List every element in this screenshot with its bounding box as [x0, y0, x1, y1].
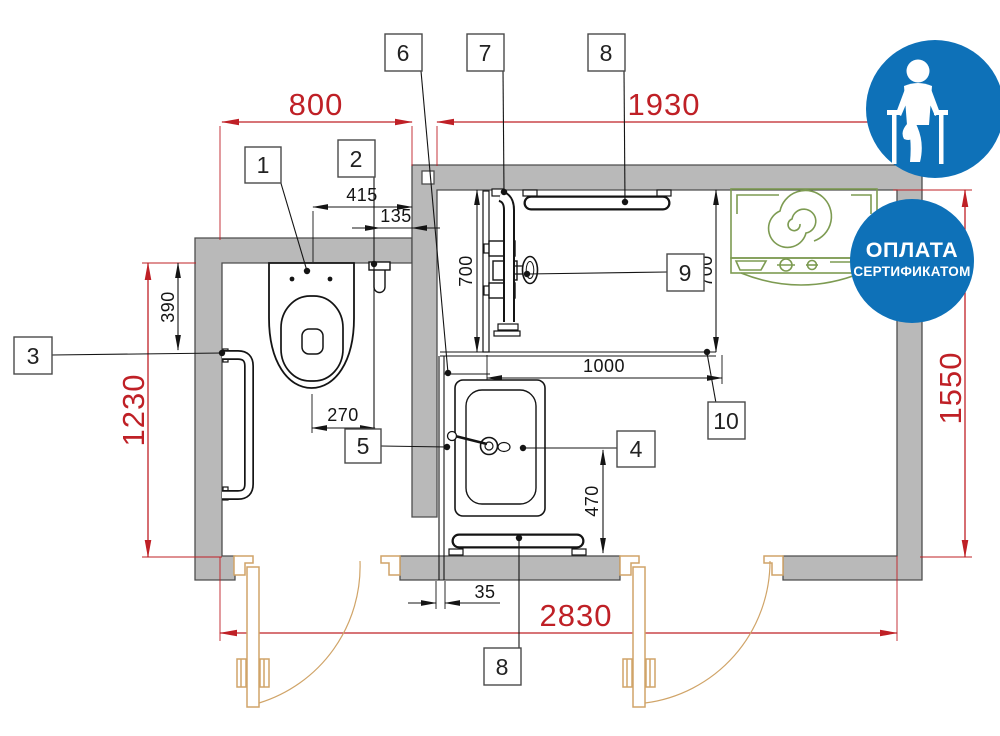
callout-6: 6	[385, 34, 422, 71]
dim-35: 35	[474, 582, 495, 602]
grab-bar-wall-left	[222, 349, 249, 500]
svg-text:3: 3	[27, 343, 40, 369]
door-toilet-room	[234, 556, 400, 707]
dim-135: 135	[380, 206, 412, 226]
svg-text:8: 8	[600, 40, 613, 66]
callout-5: 5	[345, 429, 381, 463]
payment-badge-title: ОПЛАТА	[866, 238, 959, 262]
svg-text:4: 4	[630, 436, 643, 462]
callout-2: 2	[338, 140, 375, 177]
svg-text:2: 2	[350, 146, 363, 172]
wall-notch	[422, 171, 434, 184]
dim-1930: 1930	[628, 87, 701, 122]
dim-700-left: 700	[456, 255, 476, 287]
svg-text:8: 8	[496, 654, 509, 680]
dim-1230: 1230	[116, 374, 151, 447]
dim-800: 800	[289, 87, 344, 122]
wall-bottom-center	[400, 556, 620, 580]
svg-text:9: 9	[679, 260, 692, 286]
accessibility-badge	[866, 40, 1000, 178]
dim-390: 390	[158, 291, 178, 323]
svg-text:5: 5	[357, 433, 370, 459]
callout-9: 9	[667, 254, 704, 291]
grab-bar-bottom	[449, 541, 586, 555]
dim-2830: 2830	[540, 598, 613, 633]
payment-badge-subtitle: СЕРТИФИКАТОМ	[853, 264, 970, 279]
floor-plan-drawing: 800 1930 2830 1230 1550 415 135 390 270 …	[0, 0, 1000, 736]
callout-3: 3	[14, 337, 52, 374]
svg-text:7: 7	[479, 40, 492, 66]
dim-270: 270	[327, 405, 359, 425]
dim-1550: 1550	[933, 352, 968, 425]
dim-415: 415	[346, 185, 378, 205]
toilet	[269, 263, 354, 388]
dim-1000: 1000	[583, 356, 625, 376]
grab-bar-top	[523, 190, 671, 203]
dim-470: 470	[582, 485, 602, 517]
callout-7: 7	[467, 34, 504, 71]
payment-badge: ОПЛАТА СЕРТИФИКАТОМ	[850, 199, 974, 323]
callout-8-bottom: 8	[484, 648, 521, 685]
svg-text:6: 6	[397, 40, 410, 66]
svg-text:10: 10	[713, 408, 739, 434]
svg-text:1: 1	[257, 152, 270, 178]
callout-1: 1	[245, 147, 281, 183]
callout-8-top: 8	[588, 34, 625, 71]
door-shower-room	[620, 556, 783, 707]
callout-4: 4	[617, 431, 655, 467]
callout-10: 10	[708, 402, 745, 439]
floor-plan-canvas: 800 1930 2830 1230 1550 415 135 390 270 …	[0, 0, 1000, 736]
